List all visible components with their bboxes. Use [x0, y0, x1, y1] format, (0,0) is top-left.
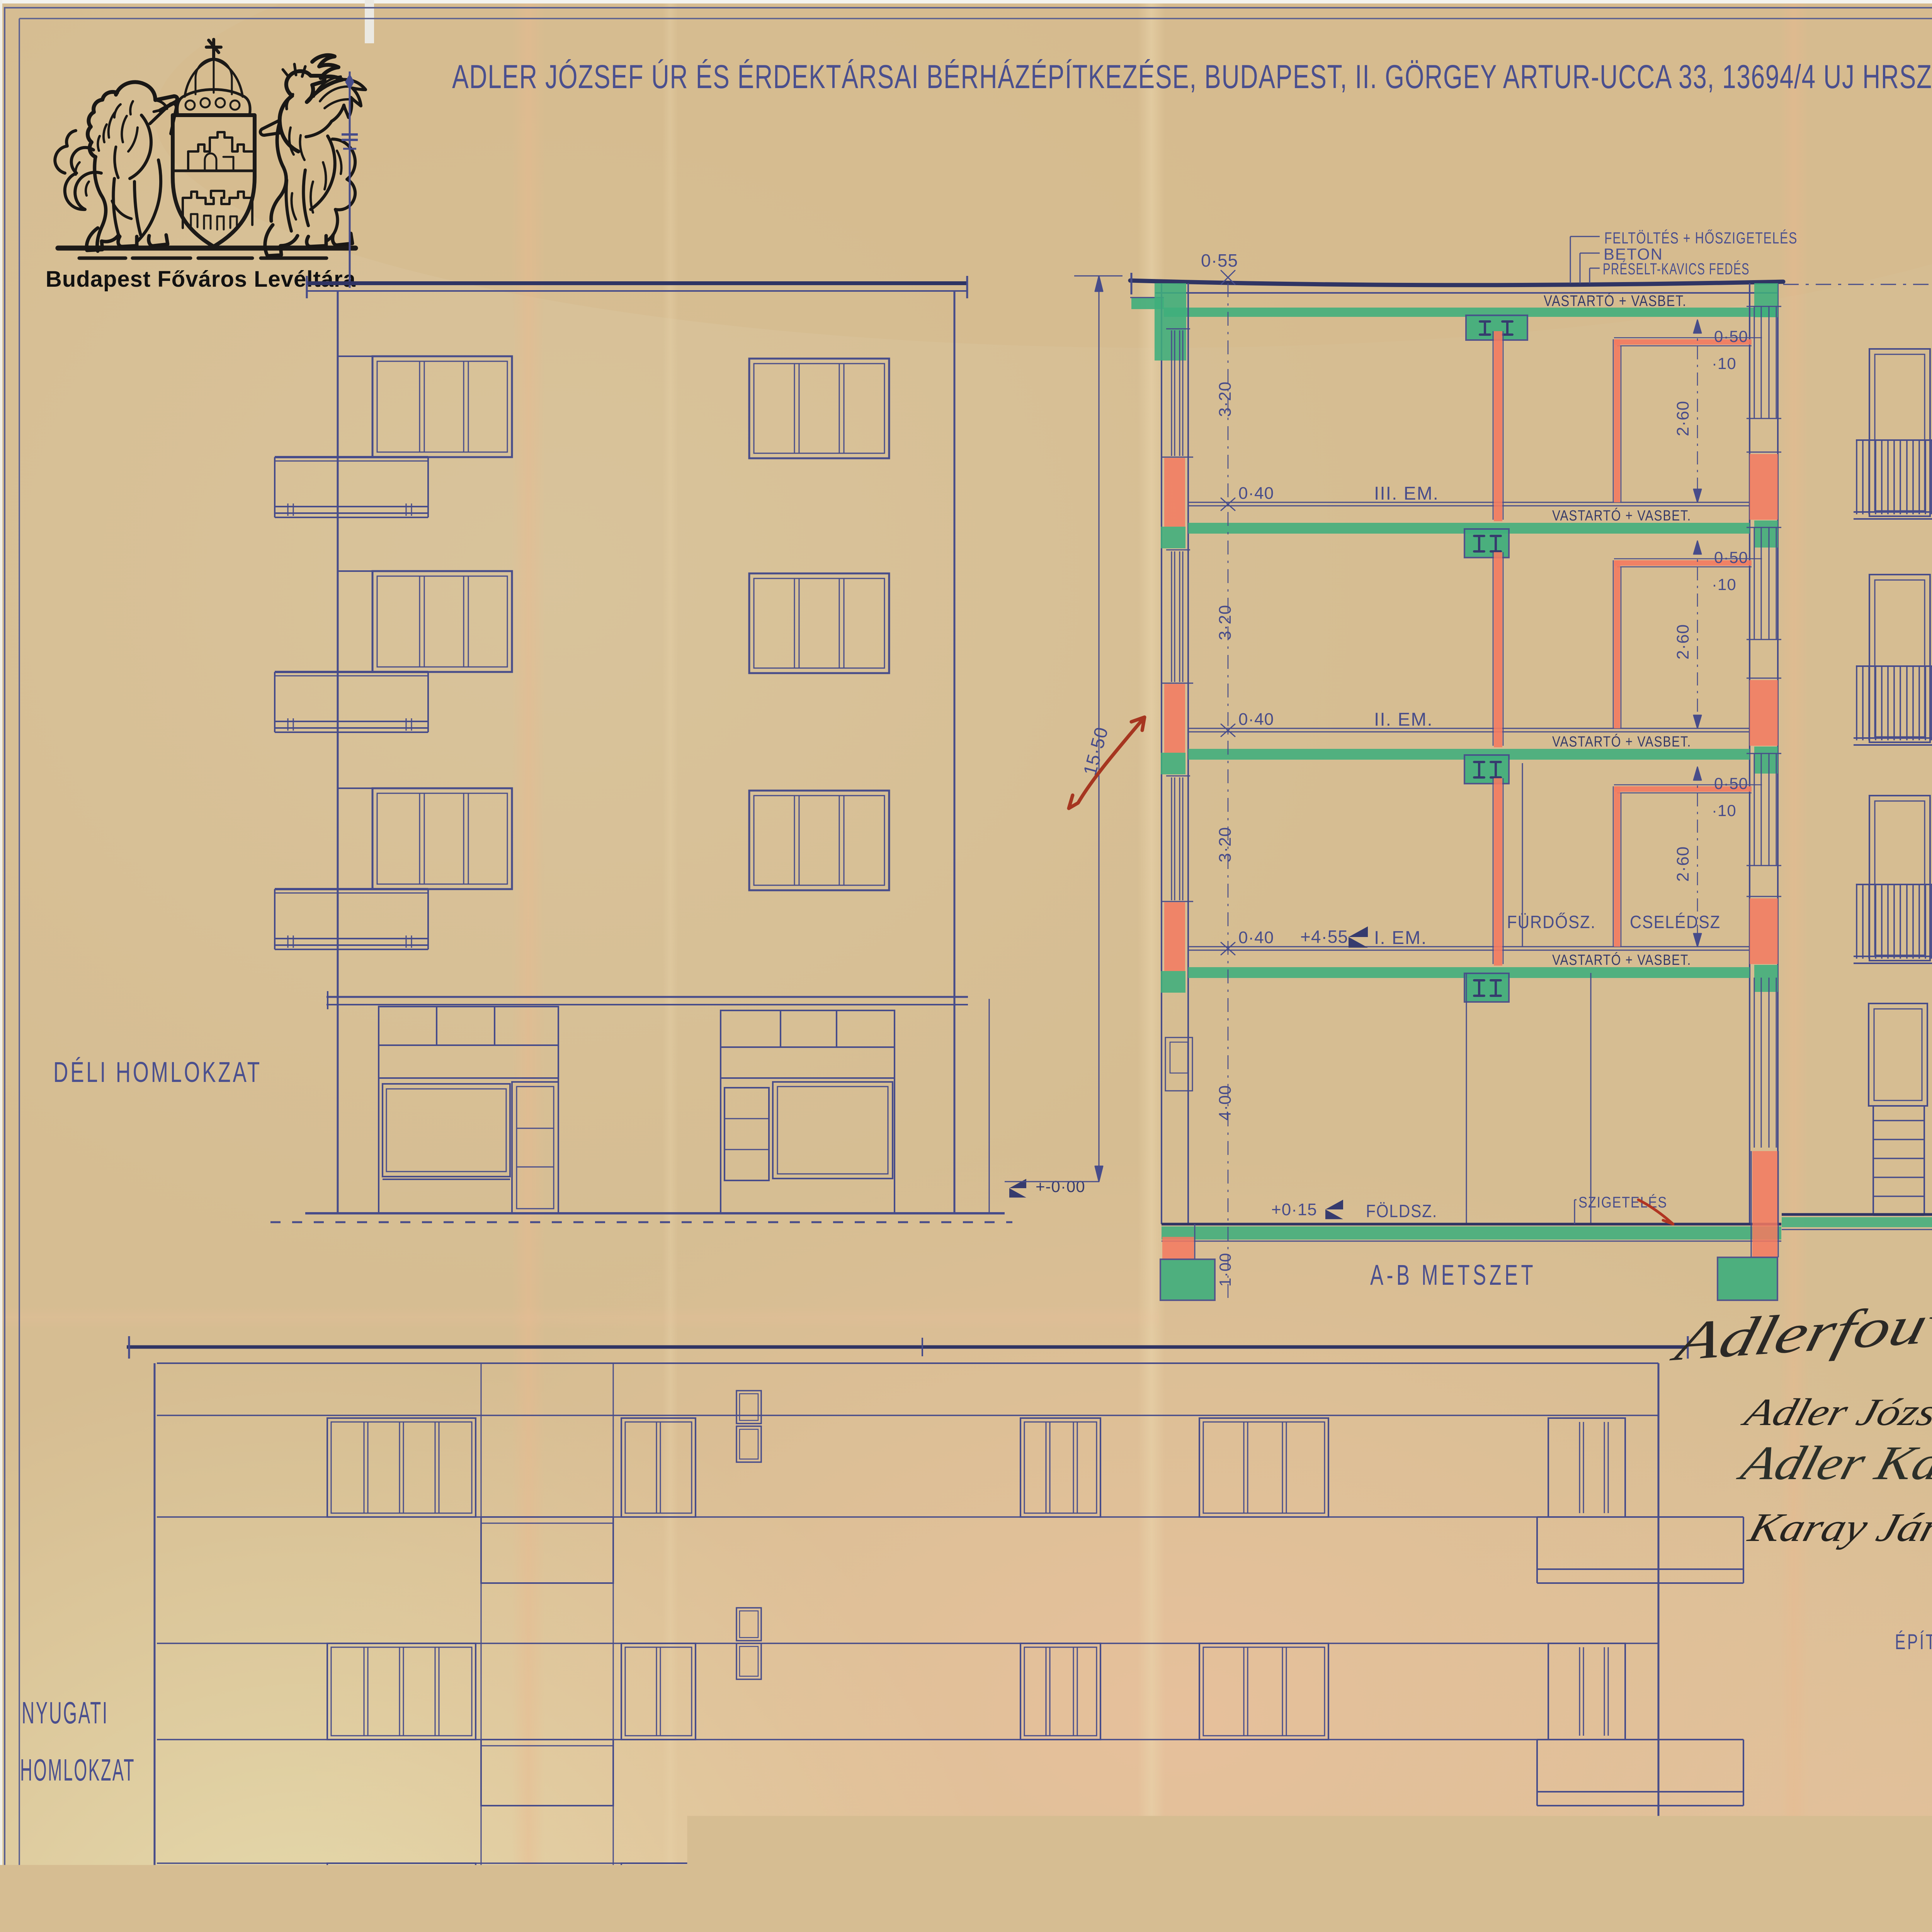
svg-text:2·60: 2·60: [1673, 624, 1692, 660]
svg-text:3·20: 3·20: [1216, 381, 1235, 417]
svg-text:0·50: 0·50: [1714, 327, 1748, 345]
svg-text:VASTARTÓ + VASBET.: VASTARTÓ + VASBET.: [1552, 733, 1691, 750]
svg-text:FÖLDSZ.: FÖLDSZ.: [1366, 1201, 1437, 1221]
svg-text:CSELÉDSZ: CSELÉDSZ: [1630, 912, 1721, 932]
svg-text:VASTARTÓ + VASBET.: VASTARTÓ + VASBET.: [1552, 507, 1691, 524]
svg-text:1·00: 1·00: [1216, 1253, 1234, 1287]
svg-text:·10: ·10: [1712, 575, 1736, 594]
svg-text:FÜRDŐSZ.: FÜRDŐSZ.: [1507, 912, 1596, 932]
svg-text:PRÉSELT-KAVICS FEDÉS: PRÉSELT-KAVICS FEDÉS: [1603, 260, 1750, 278]
svg-text:+0·15: +0·15: [1271, 1200, 1317, 1219]
svg-text:·10: ·10: [1712, 354, 1736, 372]
svg-text:Adler Józsefné n. Benkő Ilona: Adler Józsefné n. Benkő Ilona: [1738, 1391, 1932, 1434]
svg-text:+-0·00: +-0·00: [1036, 1177, 1085, 1196]
svg-text:NYUGATI: NYUGATI: [22, 1696, 109, 1730]
svg-text:0·50: 0·50: [1714, 548, 1748, 566]
svg-text:3·20: 3·20: [1216, 827, 1235, 862]
svg-text:2·60: 2·60: [1673, 846, 1692, 882]
svg-text:0·40: 0·40: [1238, 928, 1274, 947]
svg-text:Karay Jánosné Adler Magda: Karay Jánosné Adler Magda: [1743, 1505, 1932, 1550]
svg-text:VASTARTÓ + VASBET.: VASTARTÓ + VASBET.: [1544, 292, 1687, 310]
svg-text:DÉLI HOMLOKZAT: DÉLI HOMLOKZAT: [53, 1056, 262, 1088]
svg-text:0·50: 0·50: [1714, 774, 1748, 793]
svg-text:A-B METSZET: A-B METSZET: [1370, 1259, 1536, 1291]
svg-text:0·55: 0·55: [1201, 250, 1238, 270]
svg-text:ADLER JÓZSEF ÚR ÉS ÉRDEKTÁRSAI: ADLER JÓZSEF ÚR ÉS ÉRDEKTÁRSAI BÉRHÁZÉPÍ…: [452, 58, 1932, 95]
svg-text:FEL. ÉPÍTŐMESTER :: FEL. ÉPÍTŐMESTER :: [1863, 1837, 1932, 1860]
svg-text:·10: ·10: [1712, 801, 1736, 820]
svg-text:FELTÖLTÉS + HŐSZIGETELÉS: FELTÖLTÉS + HŐSZIGETELÉS: [1604, 229, 1798, 247]
svg-text:ÉPÍTTETŐK :: ÉPÍTTETŐK :: [1895, 1629, 1932, 1654]
svg-text:Adler Kató: Adler Kató: [1733, 1436, 1932, 1490]
svg-text:HOMLOKZAT: HOMLOKZAT: [20, 1753, 135, 1787]
svg-text:VASTARTÓ + VASBET.: VASTARTÓ + VASBET.: [1552, 952, 1691, 968]
svg-text:I. EM.: I. EM.: [1374, 928, 1427, 948]
svg-text:0·40: 0·40: [1238, 710, 1274, 729]
svg-text:4·00: 4·00: [1216, 1085, 1235, 1121]
svg-text:+4·55: +4·55: [1300, 927, 1348, 947]
svg-text:III. EM.: III. EM.: [1374, 483, 1439, 504]
svg-text:II. EM.: II. EM.: [1374, 709, 1433, 730]
svg-text:3·20: 3·20: [1216, 605, 1235, 640]
svg-text:2·60: 2·60: [1673, 401, 1692, 436]
svg-text:Budapest Főváros Levéltára: Budapest Főváros Levéltára: [46, 267, 356, 292]
svg-text:0·40: 0·40: [1238, 484, 1274, 503]
